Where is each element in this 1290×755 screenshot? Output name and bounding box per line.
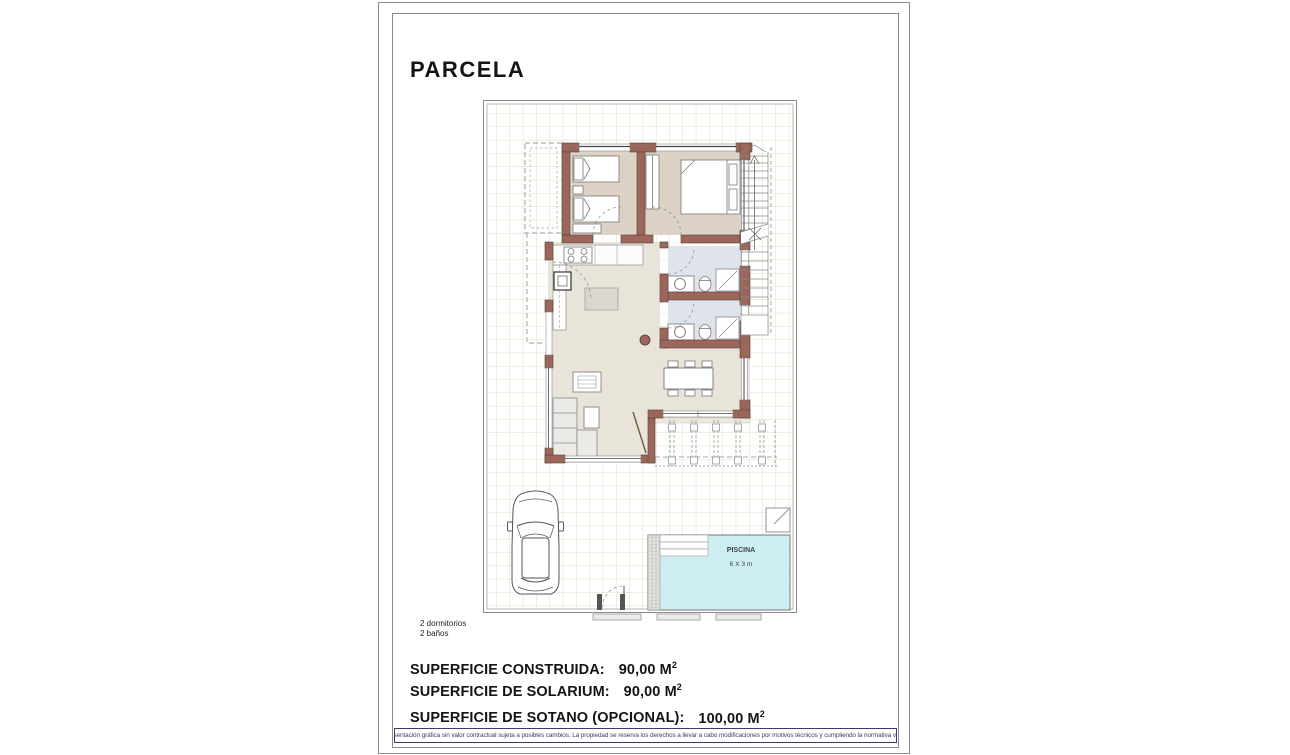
oven-icon [554, 272, 571, 290]
pool-size-label: 6 X 3 m [730, 561, 753, 568]
baths-note: 2 baños [420, 629, 466, 639]
surface-summary: SUPERFICIE CONSTRUIDA: 90,00 M2 SUPERFIC… [410, 660, 880, 726]
toilet-icon [699, 325, 711, 340]
pool: PISCINA 6 X 3 m [648, 535, 790, 610]
toilet-icon [699, 277, 711, 292]
surface-line: SUPERFICIE DE SOLARIUM: 90,00 M2 [410, 682, 880, 700]
wardrobe [646, 155, 659, 209]
page-title: PARCELA [410, 57, 525, 83]
surface-value: 100,00 M2 [698, 709, 764, 727]
outdoor-shower [766, 508, 790, 532]
double-bed-icon [681, 160, 740, 214]
disclaimer-text: Representación gráfica sin valor contrac… [394, 732, 897, 739]
surface-label: SUPERFICIE DE SOLARIUM: [410, 684, 610, 700]
coffee-table [584, 407, 599, 428]
car-topview-icon [508, 491, 564, 594]
bedrooms-note: 2 dormitorios [420, 619, 466, 629]
pool-label: PISCINA [727, 547, 755, 554]
column [640, 335, 650, 345]
surface-label: SUPERFICIE CONSTRUIDA: [410, 662, 605, 678]
disclaimer-bar: Representación gráfica sin valor contrac… [394, 728, 897, 743]
boundary-segments [593, 614, 761, 620]
site-plan: PISCINA 6 X 3 m [483, 100, 797, 624]
surface-label: SUPERFICIE DE SOTANO (OPCIONAL): [410, 710, 684, 726]
dining-table [664, 361, 713, 396]
surface-line: SUPERFICIE CONSTRUIDA: 90,00 M2 [410, 660, 880, 678]
surface-value: 90,00 M2 [619, 660, 677, 678]
plan-notes: 2 dormitorios 2 baños [420, 619, 466, 639]
surface-line: SUPERFICIE DE SOTANO (OPCIONAL): 100,00 … [410, 709, 880, 727]
tv-unit [573, 372, 601, 392]
surface-value: 90,00 M2 [624, 682, 682, 700]
